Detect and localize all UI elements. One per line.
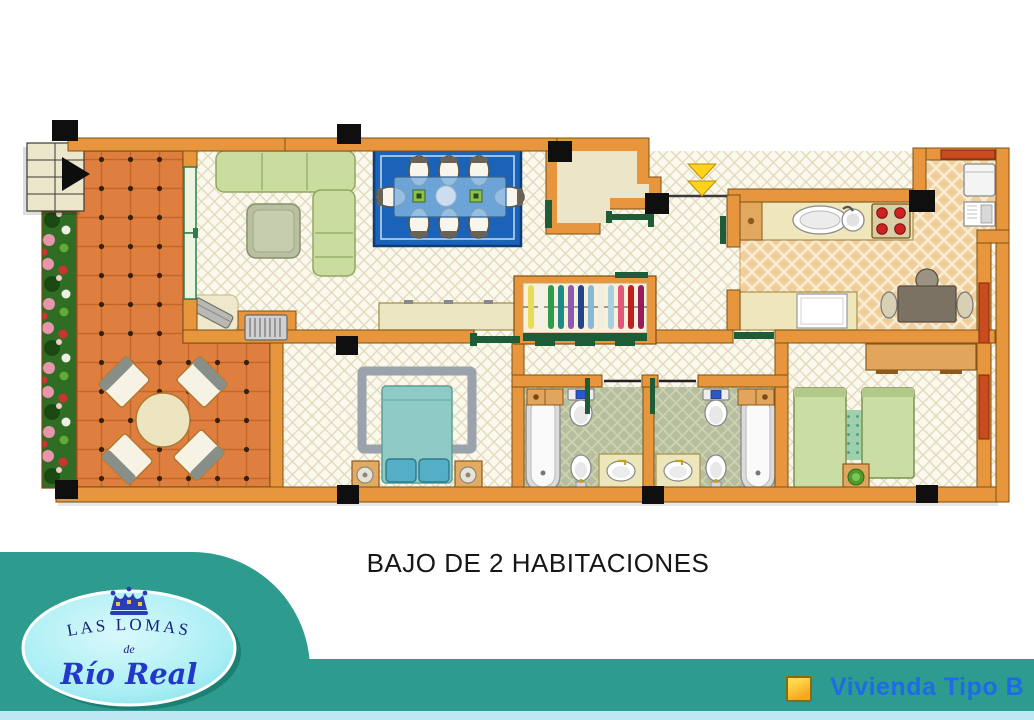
washbasin (599, 454, 643, 490)
kitchen-chair (881, 292, 897, 318)
single-bed (862, 388, 914, 478)
column (642, 486, 664, 504)
page: BAJO DE 2 HABITACIONES LAS LOMAS (0, 0, 1034, 720)
washing-machine (797, 294, 847, 328)
terrace-table (136, 393, 190, 447)
dining-area (374, 149, 524, 246)
window (941, 150, 995, 159)
logo-name-mid: de (123, 642, 135, 656)
column (337, 124, 361, 144)
stove (872, 204, 910, 238)
glass-doors (184, 167, 198, 299)
corner-sofa (216, 151, 355, 192)
column (916, 485, 938, 503)
column (909, 190, 935, 212)
dresser (866, 344, 976, 370)
column (645, 193, 669, 214)
single-bed (794, 388, 846, 488)
legend-label: Vivienda Tipo B (830, 673, 1024, 702)
column (337, 485, 359, 504)
kitchen-chair (957, 292, 973, 318)
logo-panel: LAS LOMAS de Río Real (0, 552, 310, 720)
wall-shadow (58, 502, 998, 506)
master-bedroom-door (474, 336, 520, 343)
column (55, 480, 78, 499)
kitchen-door (720, 216, 726, 244)
window (979, 375, 989, 439)
bottom-strip (0, 711, 1034, 720)
legend-swatch-icon (786, 676, 812, 702)
kitchen-table (898, 286, 956, 322)
stairs (23, 143, 90, 215)
wardrobe (514, 276, 656, 346)
logo-name-script: Río Real (60, 657, 198, 691)
table-ornament (436, 186, 456, 206)
radiator (245, 315, 287, 340)
toilet (703, 389, 729, 426)
pillow (386, 459, 416, 482)
column (336, 336, 358, 355)
sideboard (379, 303, 516, 330)
bedroom2-door (734, 332, 774, 339)
window (979, 283, 989, 343)
fridge (964, 164, 995, 196)
brand-logo: LAS LOMAS de Río Real (0, 552, 310, 720)
pillow (419, 459, 449, 482)
living-door (545, 200, 552, 228)
column (548, 141, 572, 162)
column (52, 120, 78, 141)
toilet (568, 389, 594, 426)
unit-legend: Vivienda Tipo B (786, 672, 1024, 702)
washbasin (656, 454, 700, 490)
flower-bed (42, 212, 76, 488)
